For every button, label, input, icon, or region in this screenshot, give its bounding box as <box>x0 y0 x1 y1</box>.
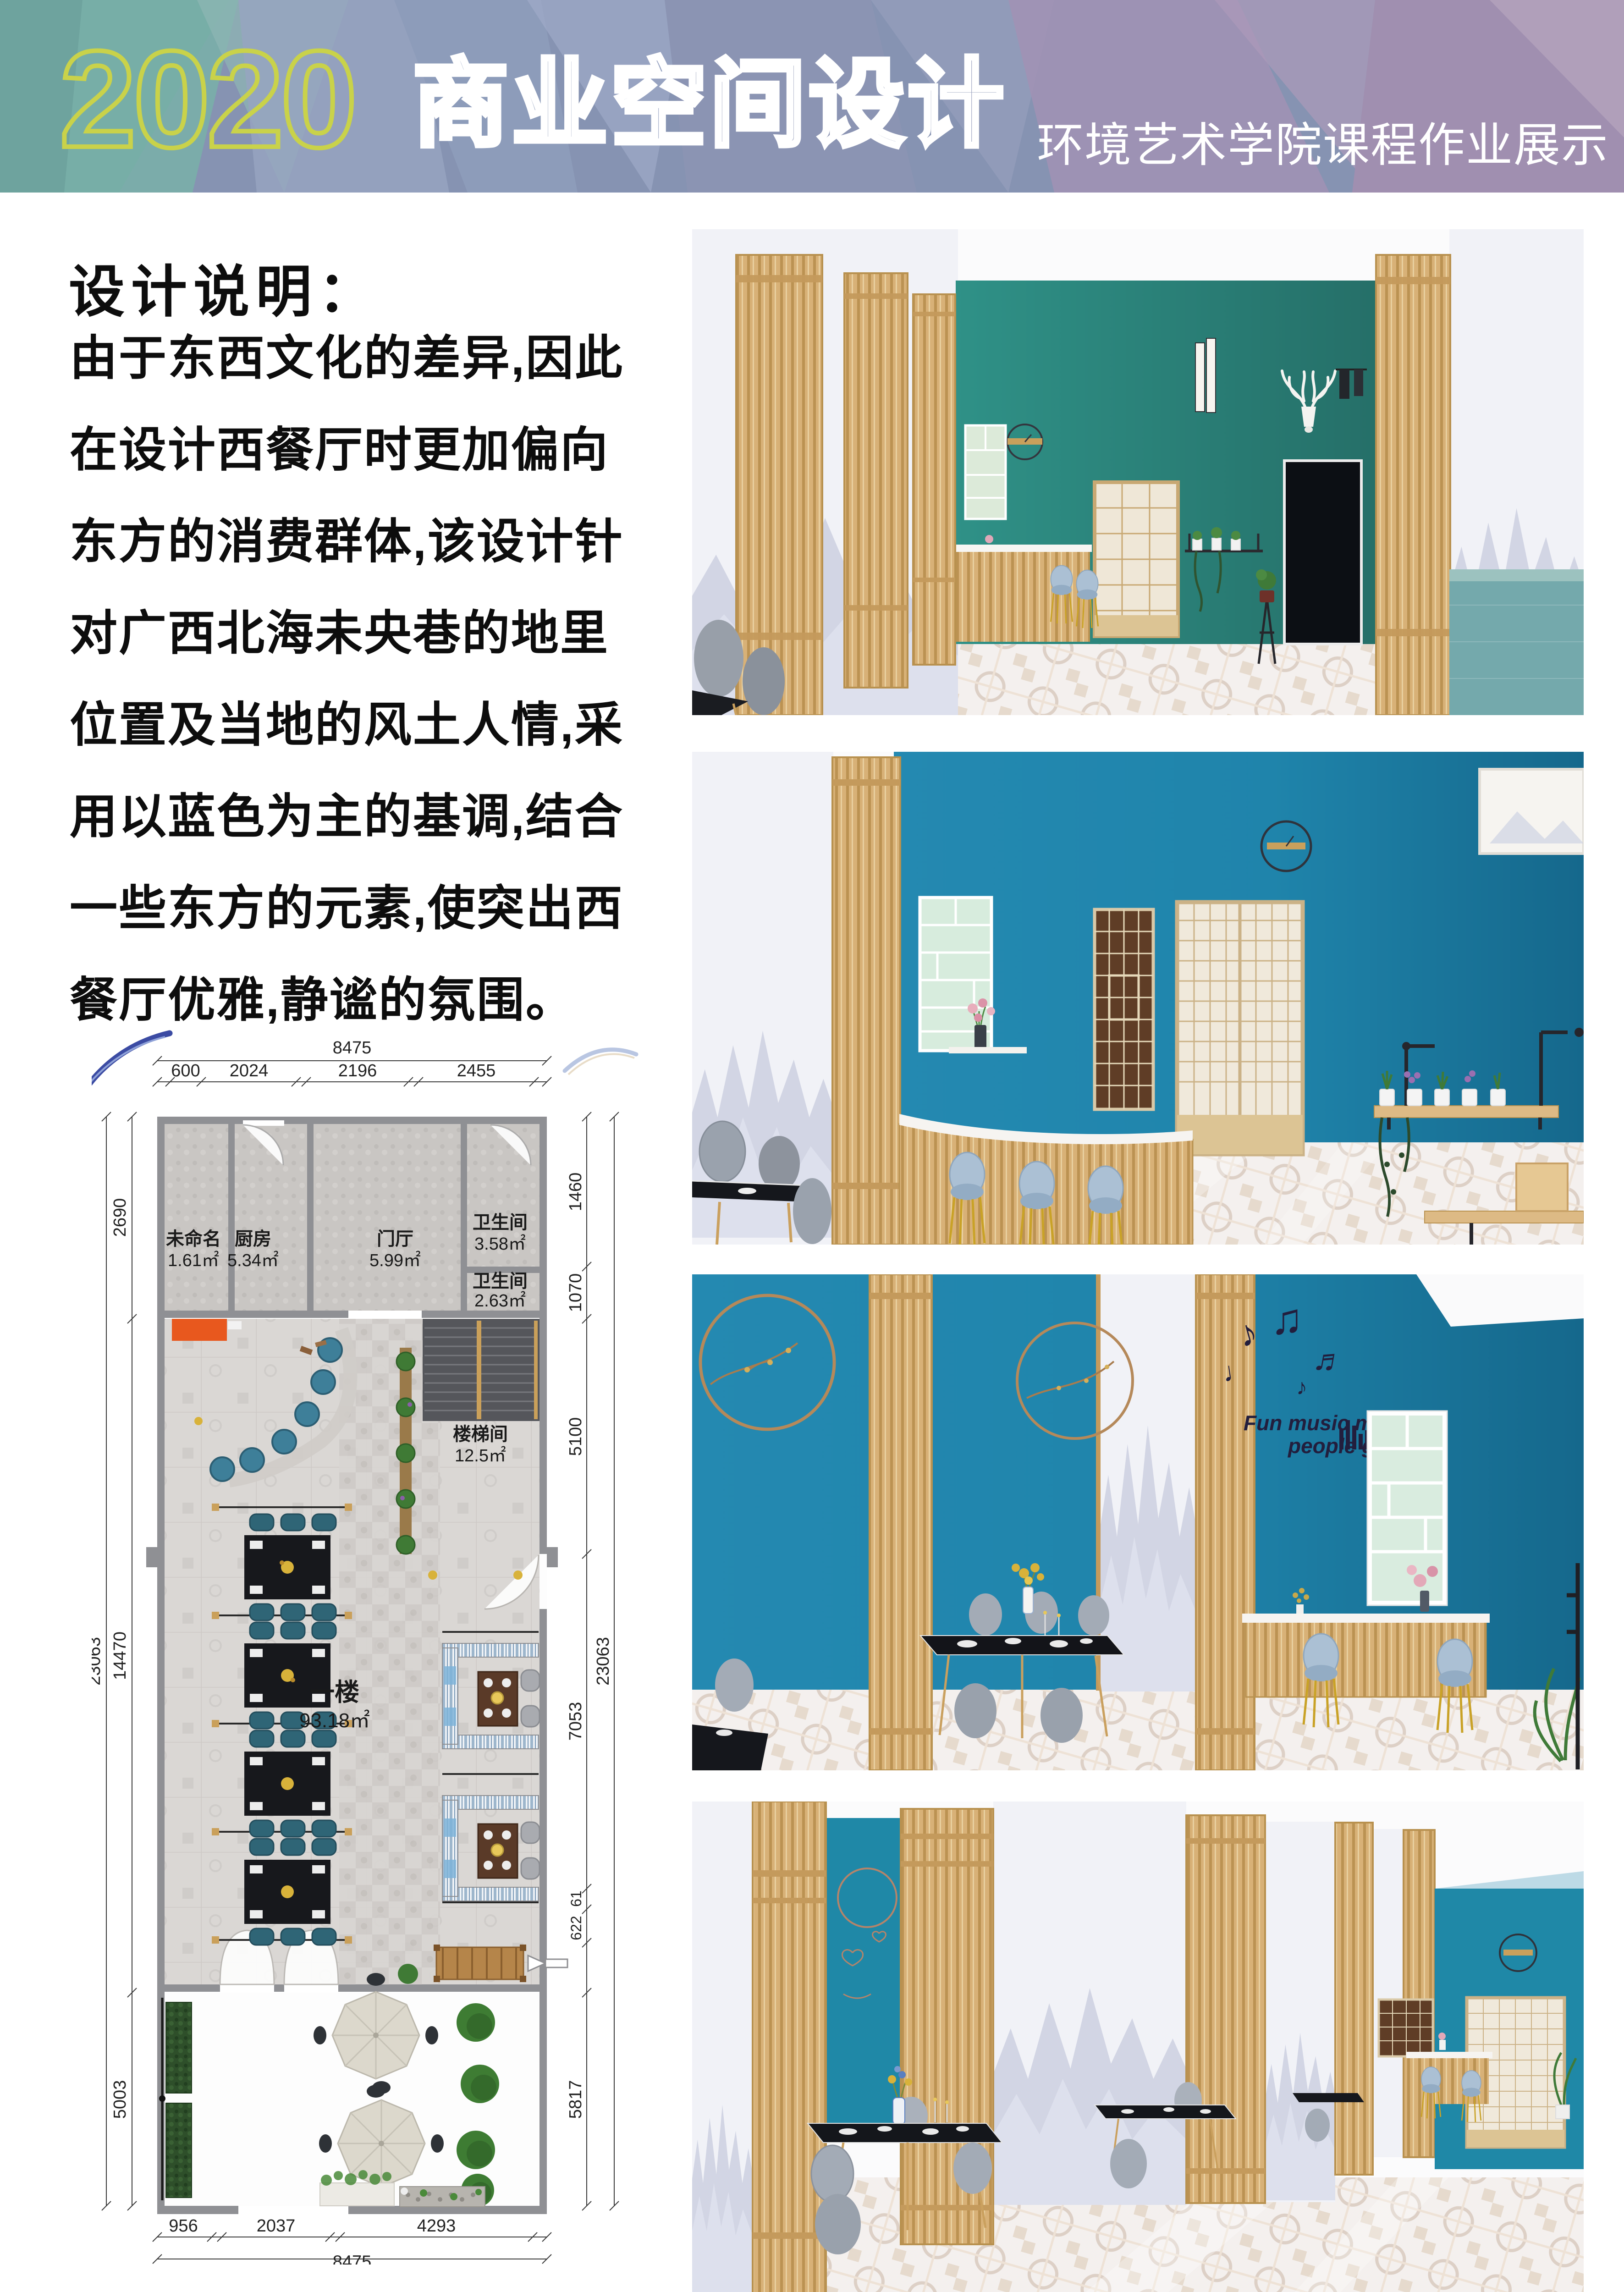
wall-frame <box>1480 769 1584 854</box>
stairwell <box>423 1319 539 1421</box>
svg-text:♩: ♩ <box>1220 1354 1252 1388</box>
doorway <box>1284 461 1361 644</box>
svg-text:3.58㎡: 3.58㎡ <box>474 1234 526 1254</box>
svg-text:23063: 23063 <box>594 1637 613 1686</box>
svg-text:卫生间: 卫生间 <box>473 1271 528 1291</box>
svg-text:4293: 4293 <box>417 2216 456 2236</box>
mint-shelf <box>1367 1411 1447 1612</box>
description-line: 在设计西餐厅时更加偏向 <box>70 411 609 480</box>
render-2-bar <box>692 752 1584 1245</box>
svg-text:7053: 7053 <box>566 1702 585 1741</box>
description-line: 用以蓝色为主的基调,结合 <box>70 777 624 847</box>
description-line: 位置及当地的风土人情,采 <box>70 686 624 755</box>
teal-wall-decal <box>826 1818 901 2142</box>
lattice-window <box>1095 909 1153 1109</box>
svg-text:61: 61 <box>568 1890 584 1907</box>
svg-text:5.99㎡: 5.99㎡ <box>369 1251 421 1270</box>
wood-screen <box>832 757 900 1245</box>
svg-text:♫: ♫ <box>1271 1295 1303 1344</box>
render-1-entrance <box>692 229 1584 715</box>
svg-text:2690: 2690 <box>110 1198 130 1237</box>
header-banner: 2020 商业空间设计 环境艺术学院课程作业展示 <box>0 0 1624 193</box>
svg-text:2024: 2024 <box>230 1061 269 1080</box>
svg-text:♪: ♪ <box>1296 1375 1307 1399</box>
svg-text:5003: 5003 <box>110 2080 130 2119</box>
page-title: 商业空间设计 <box>413 50 1007 158</box>
page-subtitle: 环境艺术学院课程作业展示 <box>1037 119 1609 171</box>
svg-text:1070: 1070 <box>566 1273 585 1312</box>
poster-page: 2020 商业空间设计 环境艺术学院课程作业展示 设计说明： 由于东西文化的差异… <box>0 0 1624 2292</box>
svg-text:1460: 1460 <box>566 1173 585 1212</box>
svg-text:956: 956 <box>169 2216 198 2236</box>
svg-text:1.61㎡: 1.61㎡ <box>168 1251 219 1270</box>
floor-plan: 8475 600 2024 2196 2455 <box>92 1027 642 2264</box>
svg-text:8475: 8475 <box>333 2252 372 2264</box>
svg-text:2037: 2037 <box>257 2216 296 2236</box>
svg-text:14470: 14470 <box>110 1631 130 1680</box>
description-line: 由于东西文化的差异,因此 <box>70 319 624 388</box>
svg-text:厨房: 厨房 <box>235 1229 271 1249</box>
description-title: 设计说明： <box>69 247 380 328</box>
svg-text:一楼: 一楼 <box>310 1679 359 1706</box>
shoji-door <box>1177 902 1303 1154</box>
mural-wall-left <box>692 1802 753 2292</box>
svg-text:600: 600 <box>171 1061 200 1080</box>
description-line: 东方的消费群体,该设计针 <box>70 502 624 572</box>
svg-text:5.34㎡: 5.34㎡ <box>227 1251 279 1270</box>
fabric-counter <box>1449 569 1584 715</box>
svg-text:12.5㎡: 12.5㎡ <box>455 1446 506 1466</box>
svg-text:♬: ♬ <box>1310 1340 1348 1381</box>
render-3-dining: ♪ ♫ ♬ ♩ ♪ Fun music makes people glad <box>692 1274 1584 1770</box>
svg-text:93.18㎡: 93.18㎡ <box>299 1709 370 1732</box>
svg-text:5817: 5817 <box>566 2080 585 2119</box>
description-line: 餐厅优雅,静谧的氛围。 <box>70 961 575 1030</box>
svg-text:8475: 8475 <box>333 1038 372 1058</box>
shoji-door <box>1095 482 1178 636</box>
svg-text:23063: 23063 <box>92 1637 104 1686</box>
description-line: 对广西北海未央巷的地里 <box>70 594 609 663</box>
svg-text:5100: 5100 <box>566 1417 585 1456</box>
svg-text:622: 622 <box>568 1916 584 1940</box>
render-4-partitions <box>692 1802 1584 2292</box>
description-line: 一些东方的元素,使突出西 <box>70 869 624 938</box>
garden-bench <box>434 1945 567 1982</box>
svg-text:2.63㎡: 2.63㎡ <box>474 1291 526 1311</box>
header-year: 2020 <box>60 22 354 176</box>
svg-text:楼梯间: 楼梯间 <box>453 1424 508 1444</box>
svg-text:2196: 2196 <box>338 1061 377 1080</box>
service-counter <box>172 1319 227 1341</box>
svg-text:卫生间: 卫生间 <box>473 1212 528 1233</box>
svg-text:2455: 2455 <box>457 1061 496 1080</box>
svg-text:未命名: 未命名 <box>166 1229 221 1249</box>
svg-text:门厅: 门厅 <box>377 1229 413 1249</box>
